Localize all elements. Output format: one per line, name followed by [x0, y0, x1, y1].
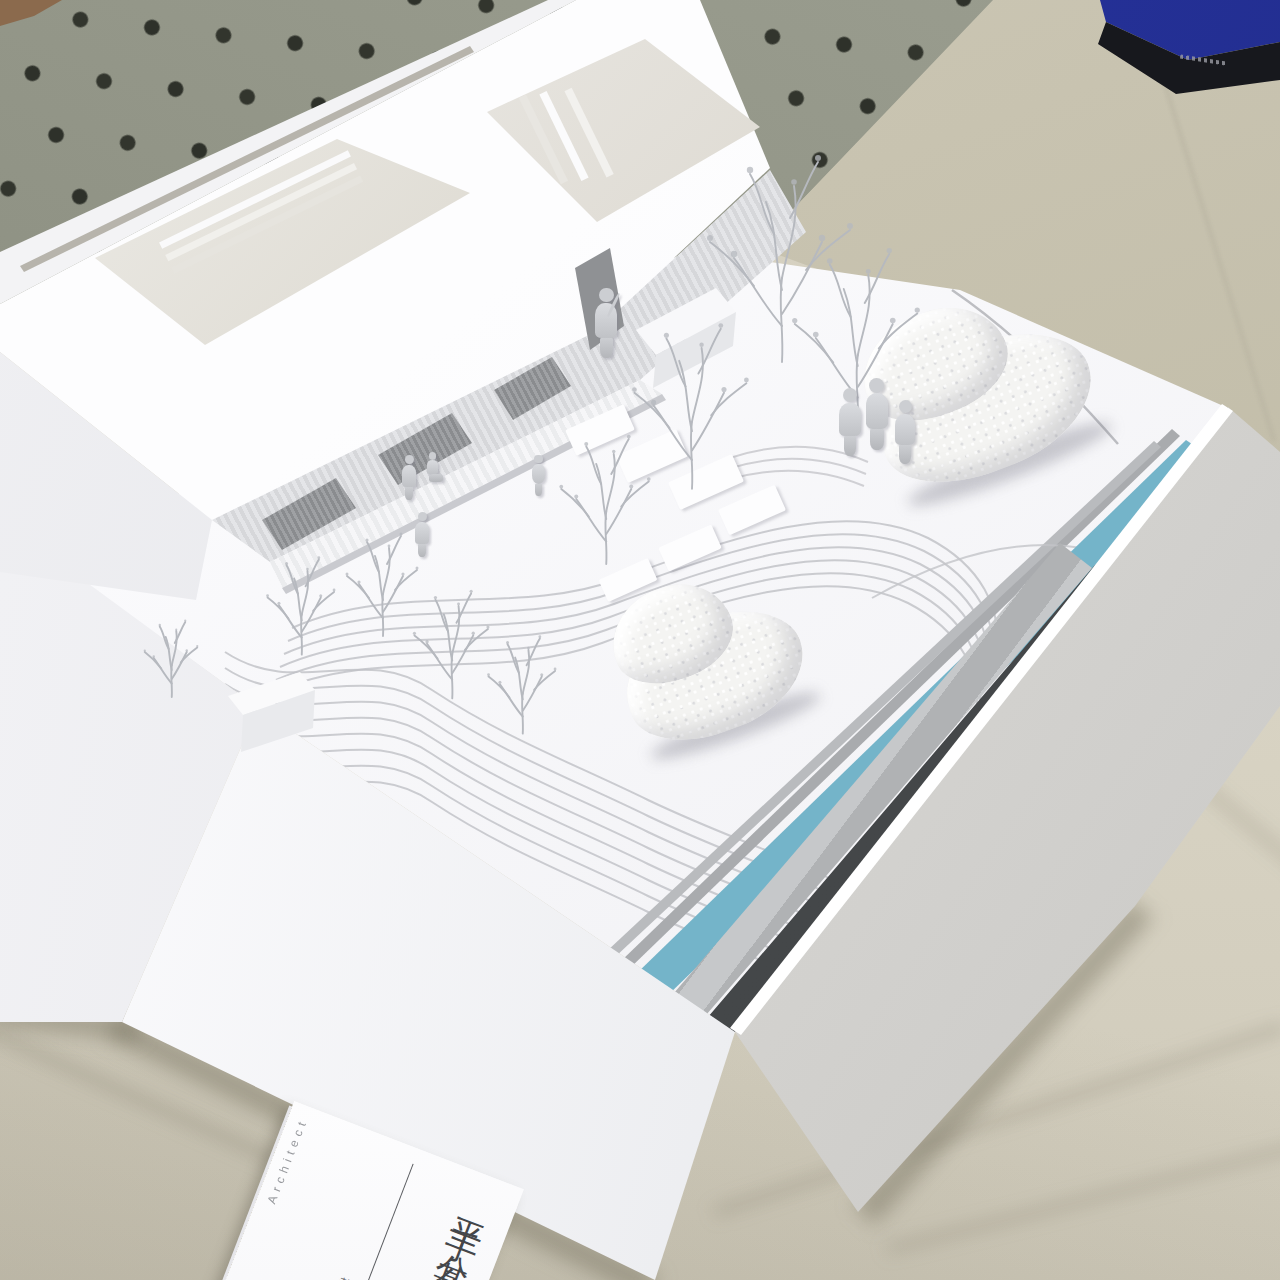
- wire-tree: [480, 631, 566, 736]
- photo-architectural-model-scene: Architect 平手 公基 kimimoto hirate 基建築設計事務所: [0, 0, 1280, 1280]
- card-office-name: 基建築設計事務所: [274, 1265, 359, 1280]
- tablecloth-wrinkle: [886, 1134, 1280, 1253]
- scale-figure-stand: [413, 512, 431, 558]
- scale-figure-stand: [862, 378, 892, 452]
- scale-figure-stand: [892, 400, 918, 466]
- figure-body: [839, 403, 860, 437]
- figure-body: [866, 393, 888, 429]
- figure-body: [415, 522, 429, 544]
- wire-tree: [138, 616, 206, 699]
- figure-legs: [870, 429, 884, 450]
- figure-body: [402, 465, 416, 487]
- figure-body: [427, 460, 439, 474]
- figure-body: [595, 303, 617, 338]
- figure-legs: [844, 436, 857, 456]
- figure-head: [534, 455, 542, 463]
- figure-body: [532, 464, 545, 484]
- figure-legs: [429, 474, 442, 482]
- scale-figure-stand: [836, 388, 864, 458]
- scale-figure-child: [530, 455, 547, 497]
- scale-figure-stand: [400, 455, 418, 501]
- figure-head: [869, 378, 884, 393]
- figure-head: [599, 288, 613, 302]
- figure-legs: [405, 487, 413, 500]
- figure-head: [418, 512, 427, 521]
- figure-head: [405, 455, 414, 464]
- figure-head: [843, 388, 857, 402]
- figure-legs: [418, 544, 426, 557]
- figure-head: [899, 400, 912, 413]
- scale-figure-sit: [425, 452, 440, 490]
- figure-legs: [899, 445, 911, 463]
- figure-body: [895, 414, 915, 446]
- card-divider-line: [308, 1164, 414, 1280]
- figure-head: [429, 452, 437, 460]
- figure-legs: [600, 338, 613, 358]
- figure-legs: [535, 484, 543, 496]
- interior-wall: [539, 91, 588, 181]
- wire-tree: [259, 552, 345, 657]
- scale-figure-door: [592, 288, 621, 360]
